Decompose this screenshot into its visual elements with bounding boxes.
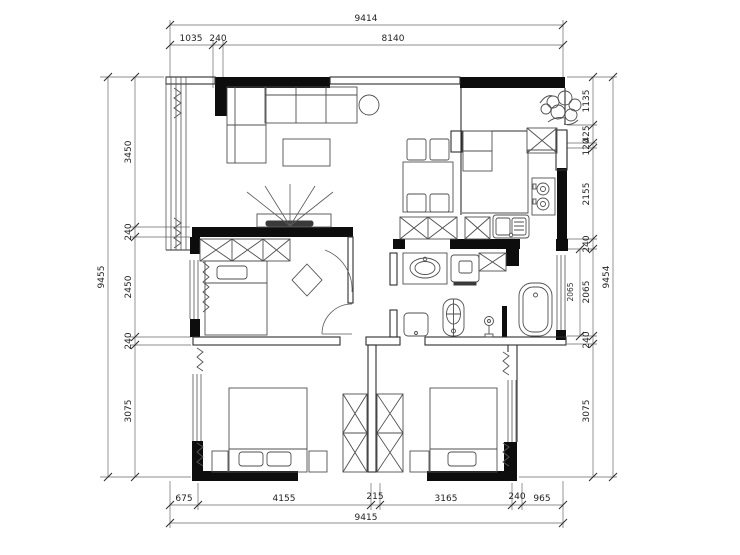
wardrobe-x-lines [343,394,367,472]
dim-label: 240 [124,332,134,349]
dim-label: 9414 [355,14,378,24]
washing-machine [451,255,479,282]
wall-column [190,237,200,254]
bedroom-right-window [508,380,516,442]
dim-label: 9454 [602,265,612,288]
bedroom-left-window [193,374,201,441]
chair-diamond [292,264,322,296]
pillow [267,452,291,466]
stove-burner [541,202,546,207]
sofa [265,87,357,123]
kitchen-counter [462,150,557,213]
stove-burner [537,183,549,195]
curtain-icon [503,352,509,375]
wall [427,471,517,481]
dim-label: 240 [582,235,592,252]
dim-label: 1035 [180,34,203,44]
wall-thin [425,337,566,345]
curtain-icon [174,88,181,118]
wall-column [556,330,566,340]
windows [166,77,565,466]
curtain-icon [197,348,203,371]
wall-column [506,249,519,266]
wall [192,471,298,481]
bed [205,261,267,335]
sink-drain-lines [514,222,524,230]
bathtub [519,283,552,336]
dim-label: 965 [533,494,550,504]
wall-stub [502,306,507,337]
living-room [227,87,379,227]
wall-column-outline [556,130,567,170]
bath-stool [404,313,428,336]
floor-drain-icon [488,320,491,323]
sink-basin [496,218,510,235]
bedroom-mid-window [190,260,198,319]
dim-label: 240 [124,223,134,240]
wall-thin [348,237,353,303]
door-swing-arc [322,304,352,334]
curtain-icon [174,218,181,248]
sink-faucet [509,233,513,237]
side-table [359,95,379,115]
bedroom-middle [200,239,352,335]
wall-column [556,239,568,251]
dim-label: 215 [366,492,383,502]
hall-cabinet-x-lines [465,217,490,239]
stove-knob [533,199,536,204]
walls-thin [166,77,567,472]
balcony-window [166,77,186,250]
shoe-cabinet [400,217,457,239]
dim-label: 3165 [435,494,458,504]
wall [215,77,330,88]
nightstand [309,451,327,472]
dim-label: 675 [175,494,192,504]
dim-right: 1135 425 120 2155 240 2065 240 3075 9454… [519,73,617,481]
sofa-chaise-line [227,87,266,163]
wall-thin [193,337,340,345]
floor-plan-page: 9414 1035 240 8140 675 4155 215 3165 240… [0,0,740,555]
dining-chair [407,194,426,212]
fridge-x-lines [527,128,557,153]
wall-thin [366,337,400,345]
dim-label: 1135 [582,90,592,113]
washing-machine-door [459,261,472,273]
dim-label: 240 [508,492,525,502]
pillow [239,452,263,466]
entry-porch [400,91,581,239]
washing-machine-base [454,282,476,285]
wall-thin [166,77,215,84]
wall-column [504,442,517,481]
dim-left: 3450 240 2450 240 3075 9455 [97,73,191,481]
wardrobe-x-lines [377,394,403,472]
dim-label: 3450 [124,140,134,163]
coffee-table [283,139,330,166]
dim-label: 3075 [124,400,134,423]
wall-thin [330,77,460,84]
stove-burner [541,187,546,192]
dim-label: 2450 [124,275,134,298]
wall-thin [368,345,376,472]
bath-cabinet-x-lines [479,253,506,271]
bathtub-drain [534,293,538,297]
bed [229,388,307,472]
nightstand [410,451,429,472]
dining-table [403,162,453,212]
wall-thin [390,310,397,337]
dim-left-lines [100,77,191,477]
dim-label: 240 [582,331,592,348]
bedroom-bottom-right [377,388,497,472]
wall [460,77,565,88]
wall-thin [390,253,397,285]
bed [430,388,497,472]
wall [450,239,520,249]
dim-label: 9455 [97,266,107,289]
bathroom [403,253,552,337]
dim-label: 9415 [355,513,378,523]
wall-column [190,319,200,337]
dining-chair [430,139,449,160]
wardrobe-x-lines [200,239,290,261]
wall-column [215,88,227,116]
dining-chair [407,139,426,160]
floor-drain-icon [485,317,494,326]
nightstand [212,451,228,472]
bathroom-window [557,255,565,330]
dining-area [403,139,453,212]
dim-label: 2065 [582,281,592,304]
dim-label: 120 [582,138,592,155]
dim-bottom: 675 4155 215 3165 240 965 9415 [166,481,567,528]
kitchen [462,128,557,238]
sink-drainboard [512,218,526,235]
wall-column-outline [451,131,462,152]
dim-label: 240 [209,34,226,44]
wall [192,227,353,237]
bathtub-inner [523,287,548,332]
dim-label: 3075 [582,400,592,423]
wall [557,168,567,249]
stove-knob [533,184,536,189]
curtain-icon [203,262,209,312]
dining-chair [430,194,449,212]
sofa-cushion-lines [265,87,357,123]
dim-label: 8140 [382,34,405,44]
plant-icon [540,91,581,125]
pillow [217,266,247,279]
dim-label: 4155 [273,494,296,504]
bath-stool-drain [415,332,418,335]
bedroom-bottom-left [212,388,367,472]
tv-viewing-lines [247,184,333,226]
washbasin-inner [415,262,435,275]
dim-label: 2155 [582,183,592,206]
shoe-cabinet-x-lines [400,217,457,239]
wall-column [393,239,405,249]
dim-label-inner: 2065 [566,282,575,301]
walls-solid [190,77,568,481]
toilet-lines [446,299,461,336]
floor-plan-drawing: 9414 1035 240 8140 675 4155 215 3165 240… [0,0,740,555]
stove-burner [537,198,549,210]
pillow [448,452,476,466]
